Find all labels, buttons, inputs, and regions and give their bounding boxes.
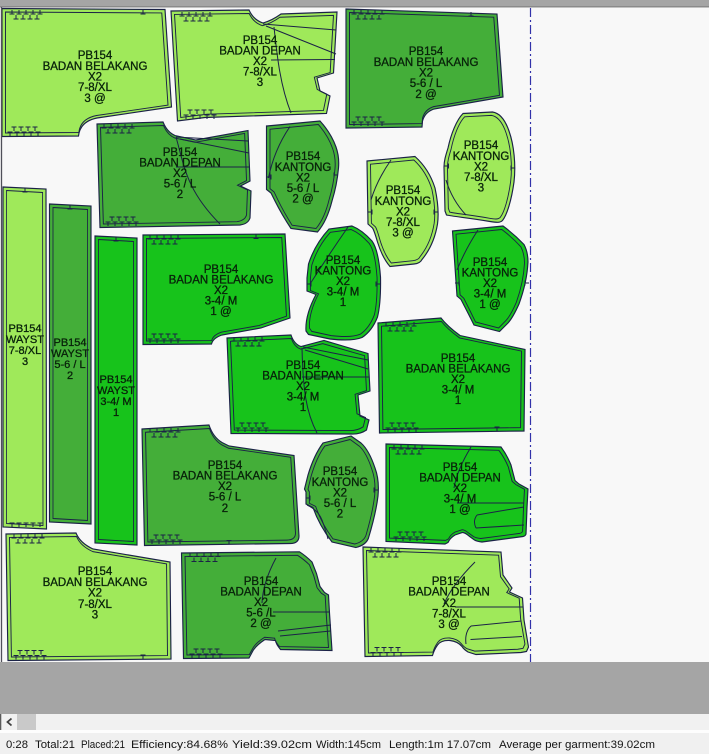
svg-text:2 @: 2 @ bbox=[250, 618, 271, 630]
svg-text:X2: X2 bbox=[88, 588, 102, 600]
svg-text:3 @: 3 @ bbox=[84, 93, 105, 105]
svg-text:Placed:21: Placed:21 bbox=[81, 739, 125, 751]
svg-text:3 @: 3 @ bbox=[438, 619, 459, 631]
svg-text:Width:145cm: Width:145cm bbox=[316, 739, 381, 751]
svg-text:1: 1 bbox=[455, 395, 461, 407]
svg-text:1 @: 1 @ bbox=[210, 306, 231, 318]
svg-text:0:28: 0:28 bbox=[6, 739, 28, 751]
svg-text:5-6 / L: 5-6 / L bbox=[209, 492, 242, 504]
svg-text:3: 3 bbox=[92, 610, 98, 622]
svg-text:Length:1m 17.07cm: Length:1m 17.07cm bbox=[389, 739, 491, 751]
svg-text:3 @: 3 @ bbox=[392, 228, 413, 240]
svg-text:2 @: 2 @ bbox=[292, 194, 313, 206]
svg-text:3: 3 bbox=[478, 183, 484, 195]
svg-text:3: 3 bbox=[257, 77, 263, 89]
svg-text:2 @: 2 @ bbox=[415, 89, 436, 101]
svg-text:Total:21: Total:21 bbox=[35, 739, 75, 751]
svg-text:2: 2 bbox=[177, 189, 183, 201]
svg-text:1: 1 bbox=[300, 402, 306, 414]
svg-text:2: 2 bbox=[337, 509, 343, 521]
svg-text:Efficiency:84.68%: Efficiency:84.68% bbox=[131, 739, 228, 751]
svg-text:1: 1 bbox=[113, 407, 119, 419]
svg-text:1 @: 1 @ bbox=[479, 299, 500, 311]
svg-text:BADAN DEPAN: BADAN DEPAN bbox=[408, 587, 490, 599]
svg-text:1 @: 1 @ bbox=[449, 504, 470, 516]
svg-text:3: 3 bbox=[22, 356, 28, 368]
svg-text:Average per garment:39.02cm: Average per garment:39.02cm bbox=[499, 739, 655, 751]
svg-text:Yield:39.02cm: Yield:39.02cm bbox=[232, 739, 312, 751]
svg-text:1: 1 bbox=[340, 297, 346, 309]
svg-text:2: 2 bbox=[222, 503, 228, 515]
svg-text:2: 2 bbox=[67, 370, 73, 382]
